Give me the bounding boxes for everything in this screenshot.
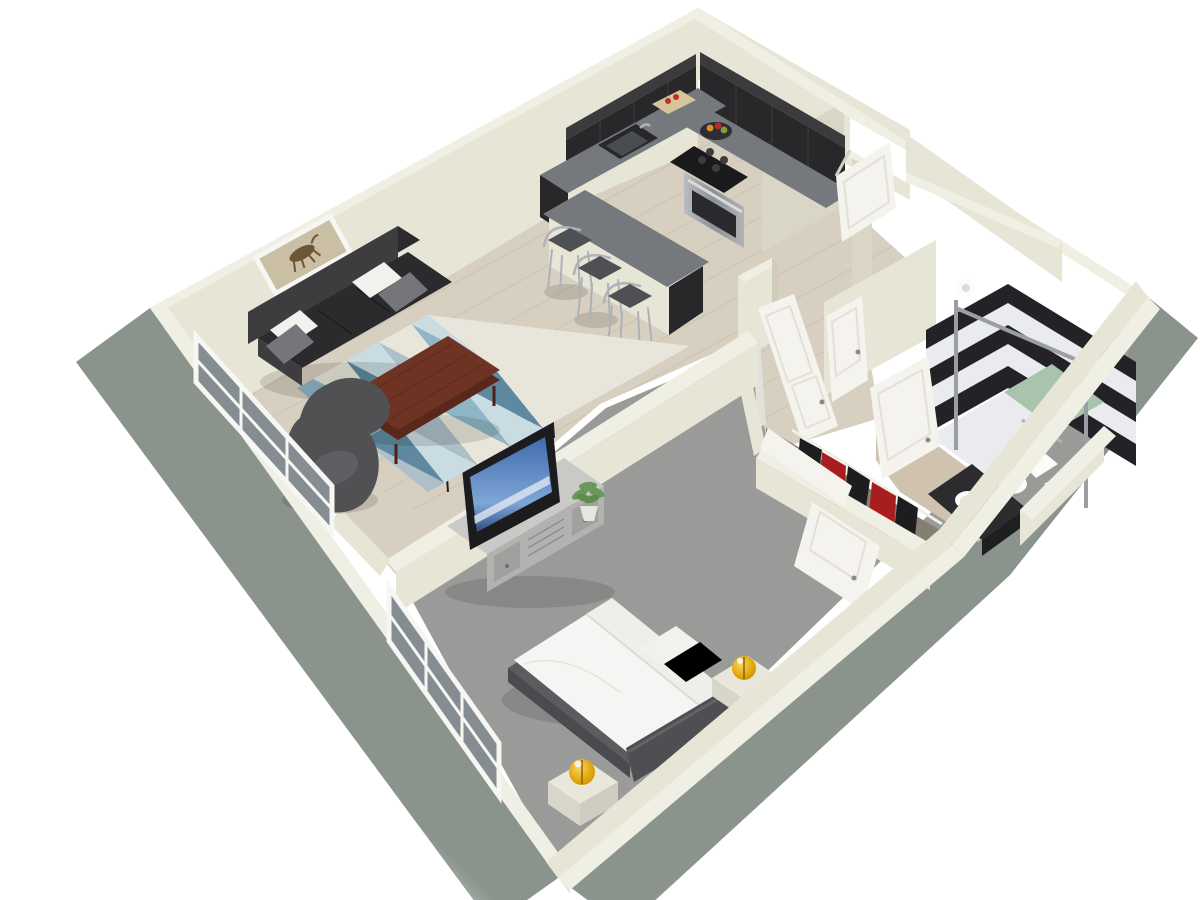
fruit	[707, 125, 714, 132]
tomato	[665, 98, 671, 104]
fixture-lid	[962, 284, 970, 292]
door-knob-icon	[820, 400, 825, 405]
door-knob-icon	[926, 438, 931, 443]
door-knob-icon	[856, 350, 861, 355]
tomato	[673, 94, 679, 100]
fruit	[715, 123, 722, 130]
floorplan-svg	[0, 0, 1200, 900]
floorplan-render	[0, 0, 1200, 900]
fruit	[721, 127, 728, 134]
door-knob-icon	[852, 576, 857, 581]
